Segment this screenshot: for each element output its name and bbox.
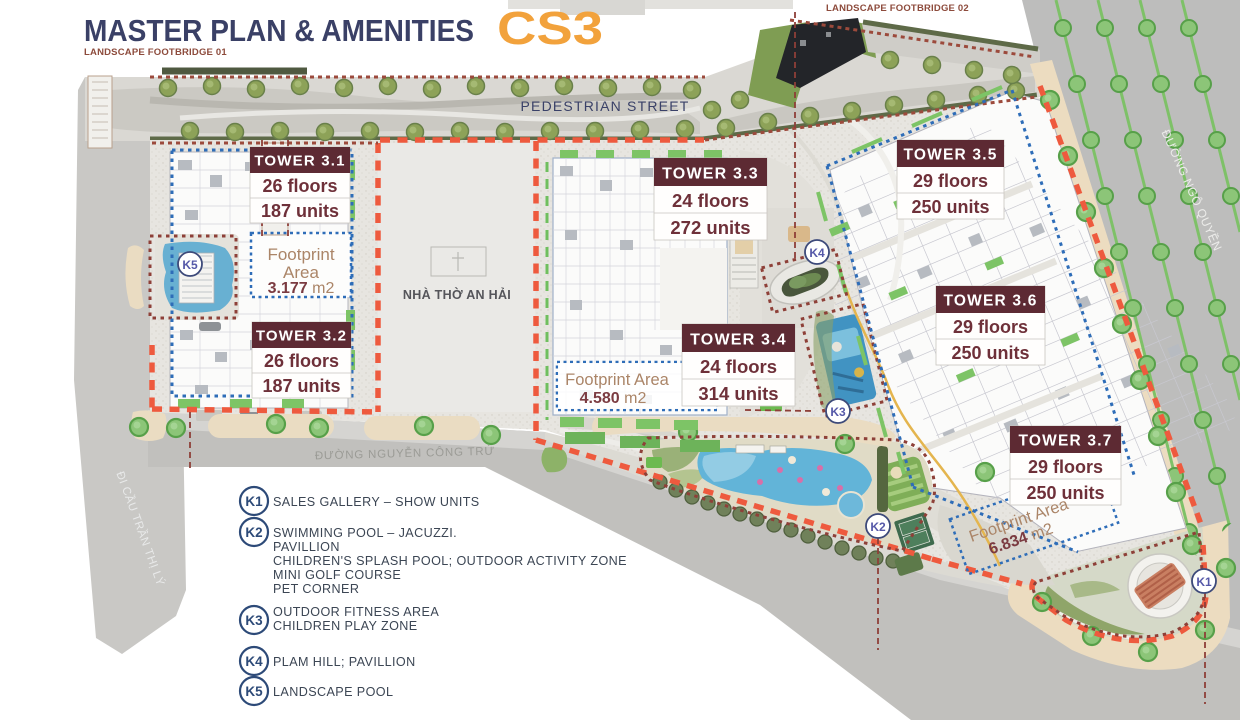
svg-text:K2: K2 — [870, 520, 886, 534]
svg-text:LANDSCAPE FOOTBRIDGE 01: LANDSCAPE FOOTBRIDGE 01 — [84, 47, 227, 58]
svg-text:PAVILLION: PAVILLION — [273, 540, 340, 554]
svg-text:LANDSCAPE POOL: LANDSCAPE POOL — [273, 685, 393, 699]
svg-text:SWIMMING POOL – JACUZZI.: SWIMMING POOL – JACUZZI. — [273, 526, 457, 540]
svg-text:LANDSCAPE FOOTBRIDGE 02: LANDSCAPE FOOTBRIDGE 02 — [826, 3, 969, 14]
svg-text:K5: K5 — [182, 258, 198, 272]
svg-text:314 units: 314 units — [698, 383, 778, 404]
svg-text:CS3: CS3 — [497, 2, 603, 54]
svg-text:29 floors: 29 floors — [913, 171, 988, 191]
svg-text:187 units: 187 units — [261, 201, 339, 221]
svg-text:NHÀ THỜ AN HẢI: NHÀ THỜ AN HẢI — [403, 287, 511, 302]
svg-text:PLAM HILL; PAVILLION: PLAM HILL; PAVILLION — [273, 655, 416, 669]
svg-text:TOWER 3.4: TOWER 3.4 — [690, 332, 787, 349]
svg-text:3.177 m2: 3.177 m2 — [268, 280, 335, 297]
svg-text:29 floors: 29 floors — [1028, 457, 1103, 477]
svg-text:MINI GOLF COURSE: MINI GOLF COURSE — [273, 568, 401, 582]
svg-text:K4: K4 — [809, 246, 825, 260]
svg-text:K3: K3 — [245, 613, 263, 628]
svg-text:K2: K2 — [245, 525, 262, 540]
svg-text:TOWER 3.2: TOWER 3.2 — [256, 328, 347, 345]
svg-text:24 floors: 24 floors — [672, 190, 749, 211]
svg-text:TOWER 3.7: TOWER 3.7 — [1018, 433, 1112, 450]
svg-text:K1: K1 — [245, 494, 263, 509]
svg-text:250 units: 250 units — [951, 343, 1029, 363]
svg-text:CHILDREN'S SPLASH POOL; OUTDOO: CHILDREN'S SPLASH POOL; OUTDOOR ACTIVITY… — [273, 554, 627, 568]
svg-text:250 units: 250 units — [911, 197, 989, 217]
svg-text:TOWER 3.5: TOWER 3.5 — [903, 147, 997, 164]
svg-text:26 floors: 26 floors — [264, 351, 339, 371]
svg-text:SALES GALLERY – SHOW UNITS: SALES GALLERY – SHOW UNITS — [273, 495, 480, 509]
svg-text:272 units: 272 units — [670, 217, 750, 238]
svg-text:187 units: 187 units — [262, 376, 340, 396]
svg-text:24 floors: 24 floors — [700, 356, 777, 377]
svg-text:TOWER 3.6: TOWER 3.6 — [943, 293, 1037, 310]
svg-text:K4: K4 — [245, 654, 263, 669]
svg-text:Footprint: Footprint — [267, 245, 334, 264]
svg-text:MASTER PLAN & AMENITIES: MASTER PLAN & AMENITIES — [84, 13, 474, 48]
svg-text:4.580 m2: 4.580 m2 — [580, 390, 647, 407]
svg-text:Footprint Area: Footprint Area — [565, 371, 669, 389]
svg-text:K1: K1 — [1196, 575, 1212, 589]
svg-text:29 floors: 29 floors — [953, 317, 1028, 337]
svg-text:K5: K5 — [245, 684, 263, 699]
svg-text:CHILDREN PLAY ZONE: CHILDREN PLAY ZONE — [273, 619, 418, 633]
svg-text:TOWER 3.3: TOWER 3.3 — [662, 166, 759, 183]
svg-text:26 floors: 26 floors — [262, 176, 337, 196]
svg-text:TOWER 3.1: TOWER 3.1 — [254, 153, 345, 170]
svg-text:OUTDOOR FITNESS AREA: OUTDOOR FITNESS AREA — [273, 605, 439, 619]
svg-text:K3: K3 — [830, 405, 846, 419]
svg-text:PET CORNER: PET CORNER — [273, 582, 359, 596]
svg-text:PEDESTRIAN STREET: PEDESTRIAN STREET — [521, 98, 690, 114]
